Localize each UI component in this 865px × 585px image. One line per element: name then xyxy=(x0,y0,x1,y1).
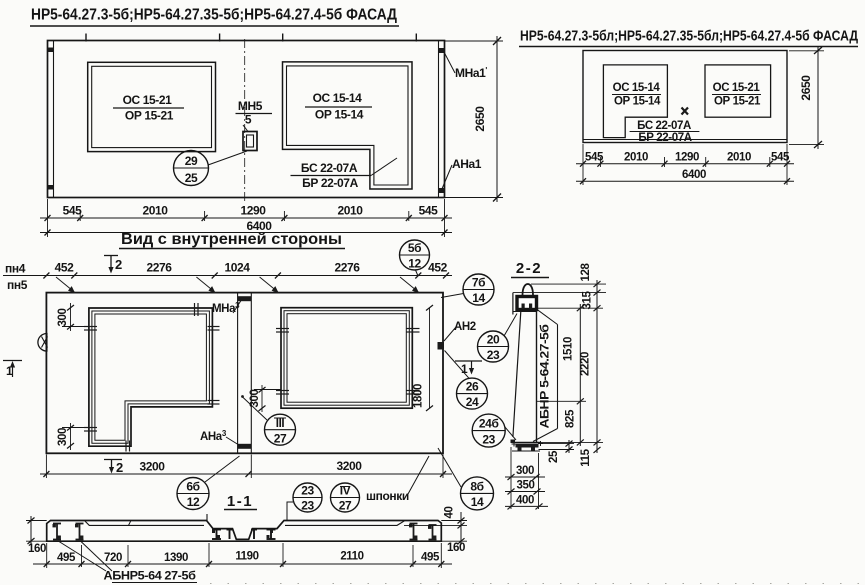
svg-text:300: 300 xyxy=(57,428,69,446)
svg-text:23: 23 xyxy=(301,484,314,498)
svg-text:ОР 15-14: ОР 15-14 xyxy=(315,108,364,122)
svg-text:350: 350 xyxy=(517,480,535,492)
svg-text:27: 27 xyxy=(339,499,352,513)
svg-text:14: 14 xyxy=(472,291,485,305)
svg-text:825: 825 xyxy=(565,409,577,428)
svg-text:400: 400 xyxy=(516,495,534,507)
svg-text:ОС 15-14: ОС 15-14 xyxy=(613,82,661,94)
svg-text:пн5: пн5 xyxy=(7,278,28,292)
svg-text:Вид с внутренней стороны: Вид с внутренней стороны xyxy=(121,231,342,248)
svg-text:495: 495 xyxy=(421,552,440,564)
svg-text:1290: 1290 xyxy=(240,204,266,218)
svg-text:40: 40 xyxy=(444,507,456,519)
svg-text:БС 22-07А: БС 22-07А xyxy=(637,120,691,132)
svg-text:12: 12 xyxy=(187,495,200,509)
svg-text:545: 545 xyxy=(771,152,790,164)
svg-text:1800: 1800 xyxy=(413,384,425,408)
svg-text:300: 300 xyxy=(57,309,69,327)
svg-text:ОС 15-14: ОС 15-14 xyxy=(313,91,363,105)
svg-text:115: 115 xyxy=(580,448,592,466)
svg-text:пн4: пн4 xyxy=(5,262,26,276)
svg-text:ОР 15-21: ОР 15-21 xyxy=(714,96,761,108)
svg-text:720: 720 xyxy=(104,552,122,564)
svg-text:ОР 15-21: ОР 15-21 xyxy=(125,109,174,123)
svg-text:НР5-64.27.3-5б;НР5-64.27.35-5б: НР5-64.27.3-5б;НР5-64.27.35-5б;НР5-64.27… xyxy=(31,7,398,24)
svg-text:452: 452 xyxy=(55,261,75,275)
svg-text:20: 20 xyxy=(487,333,500,347)
svg-text:545: 545 xyxy=(585,152,604,164)
svg-text:160: 160 xyxy=(447,542,465,554)
svg-text:АНа1: АНа1 xyxy=(452,157,482,171)
svg-text:1024: 1024 xyxy=(224,261,250,275)
svg-text:8б: 8б xyxy=(470,480,483,494)
svg-text:1390: 1390 xyxy=(164,552,188,564)
svg-text:III: III xyxy=(276,418,285,430)
svg-text:3200: 3200 xyxy=(336,459,362,473)
svg-text:14: 14 xyxy=(471,495,484,509)
svg-text:128: 128 xyxy=(580,263,592,282)
svg-text:545: 545 xyxy=(419,204,439,218)
svg-text:ОС 15-21: ОС 15-21 xyxy=(713,82,761,94)
svg-text:23: 23 xyxy=(487,348,500,362)
svg-text:2010: 2010 xyxy=(142,204,168,218)
svg-text:25: 25 xyxy=(185,171,198,185)
svg-text:24б: 24б xyxy=(479,417,499,431)
svg-text:БР 22-07А: БР 22-07А xyxy=(302,176,358,190)
svg-text:6400: 6400 xyxy=(682,169,706,181)
svg-text:300: 300 xyxy=(516,465,534,477)
svg-text:2: 2 xyxy=(115,257,122,272)
svg-text:12: 12 xyxy=(408,257,421,271)
svg-text:2650: 2650 xyxy=(473,106,487,132)
svg-text:МНа1': МНа1' xyxy=(455,66,487,80)
svg-text:2010: 2010 xyxy=(337,204,363,218)
svg-text:1: 1 xyxy=(6,364,13,378)
svg-text:7б: 7б xyxy=(472,276,485,290)
svg-text:1190: 1190 xyxy=(235,551,258,563)
svg-text:БР 22-07А: БР 22-07А xyxy=(638,132,691,144)
svg-text:24: 24 xyxy=(466,395,479,409)
svg-text:IV: IV xyxy=(340,484,351,498)
svg-text:1510: 1510 xyxy=(563,337,575,361)
svg-text:25: 25 xyxy=(548,450,560,463)
svg-text:2110: 2110 xyxy=(340,551,363,563)
svg-text:АБНР5-64 27-5б: АБНР5-64 27-5б xyxy=(104,569,196,583)
svg-text:МН5: МН5 xyxy=(238,99,263,113)
svg-text:ОС 15-21: ОС 15-21 xyxy=(123,93,173,107)
svg-text:6б: 6б xyxy=(186,480,199,494)
svg-text:2010: 2010 xyxy=(624,152,648,164)
svg-text:1-1: 1-1 xyxy=(227,493,253,510)
svg-text:3200: 3200 xyxy=(139,460,165,474)
svg-text:БС 22-07А: БС 22-07А xyxy=(301,161,358,175)
svg-text:495: 495 xyxy=(57,552,76,564)
svg-text:315: 315 xyxy=(582,291,594,310)
svg-text:23: 23 xyxy=(301,499,314,513)
svg-text:5б: 5б xyxy=(408,241,421,255)
svg-text:27: 27 xyxy=(274,432,287,446)
svg-text:шпонки: шпонки xyxy=(366,489,409,503)
svg-text:2010: 2010 xyxy=(727,152,751,164)
svg-text:545: 545 xyxy=(63,204,83,218)
svg-text:1290: 1290 xyxy=(675,152,699,164)
svg-text:АБНР 5-64.27-5б: АБНР 5-64.27-5б xyxy=(538,325,552,429)
svg-text:2276: 2276 xyxy=(146,261,172,275)
svg-text:НР5-64.27.3-5бл;НР5-64.27.35-5: НР5-64.27.3-5бл;НР5-64.27.35-5бл;НР5-64.… xyxy=(520,28,858,45)
svg-text:2: 2 xyxy=(116,460,123,475)
svg-text:АН2: АН2 xyxy=(454,321,476,333)
svg-text:2650: 2650 xyxy=(799,75,813,101)
svg-text:ОР 15-14: ОР 15-14 xyxy=(614,96,661,108)
svg-text:26: 26 xyxy=(466,380,479,394)
svg-text:2-2: 2-2 xyxy=(516,260,542,277)
svg-text:29: 29 xyxy=(185,154,198,168)
svg-text:5: 5 xyxy=(245,113,252,127)
svg-text:2220: 2220 xyxy=(580,352,592,376)
svg-text:452: 452 xyxy=(428,261,448,275)
svg-text:23: 23 xyxy=(482,433,495,447)
svg-text:2276: 2276 xyxy=(334,261,360,275)
svg-text:160: 160 xyxy=(28,543,46,555)
